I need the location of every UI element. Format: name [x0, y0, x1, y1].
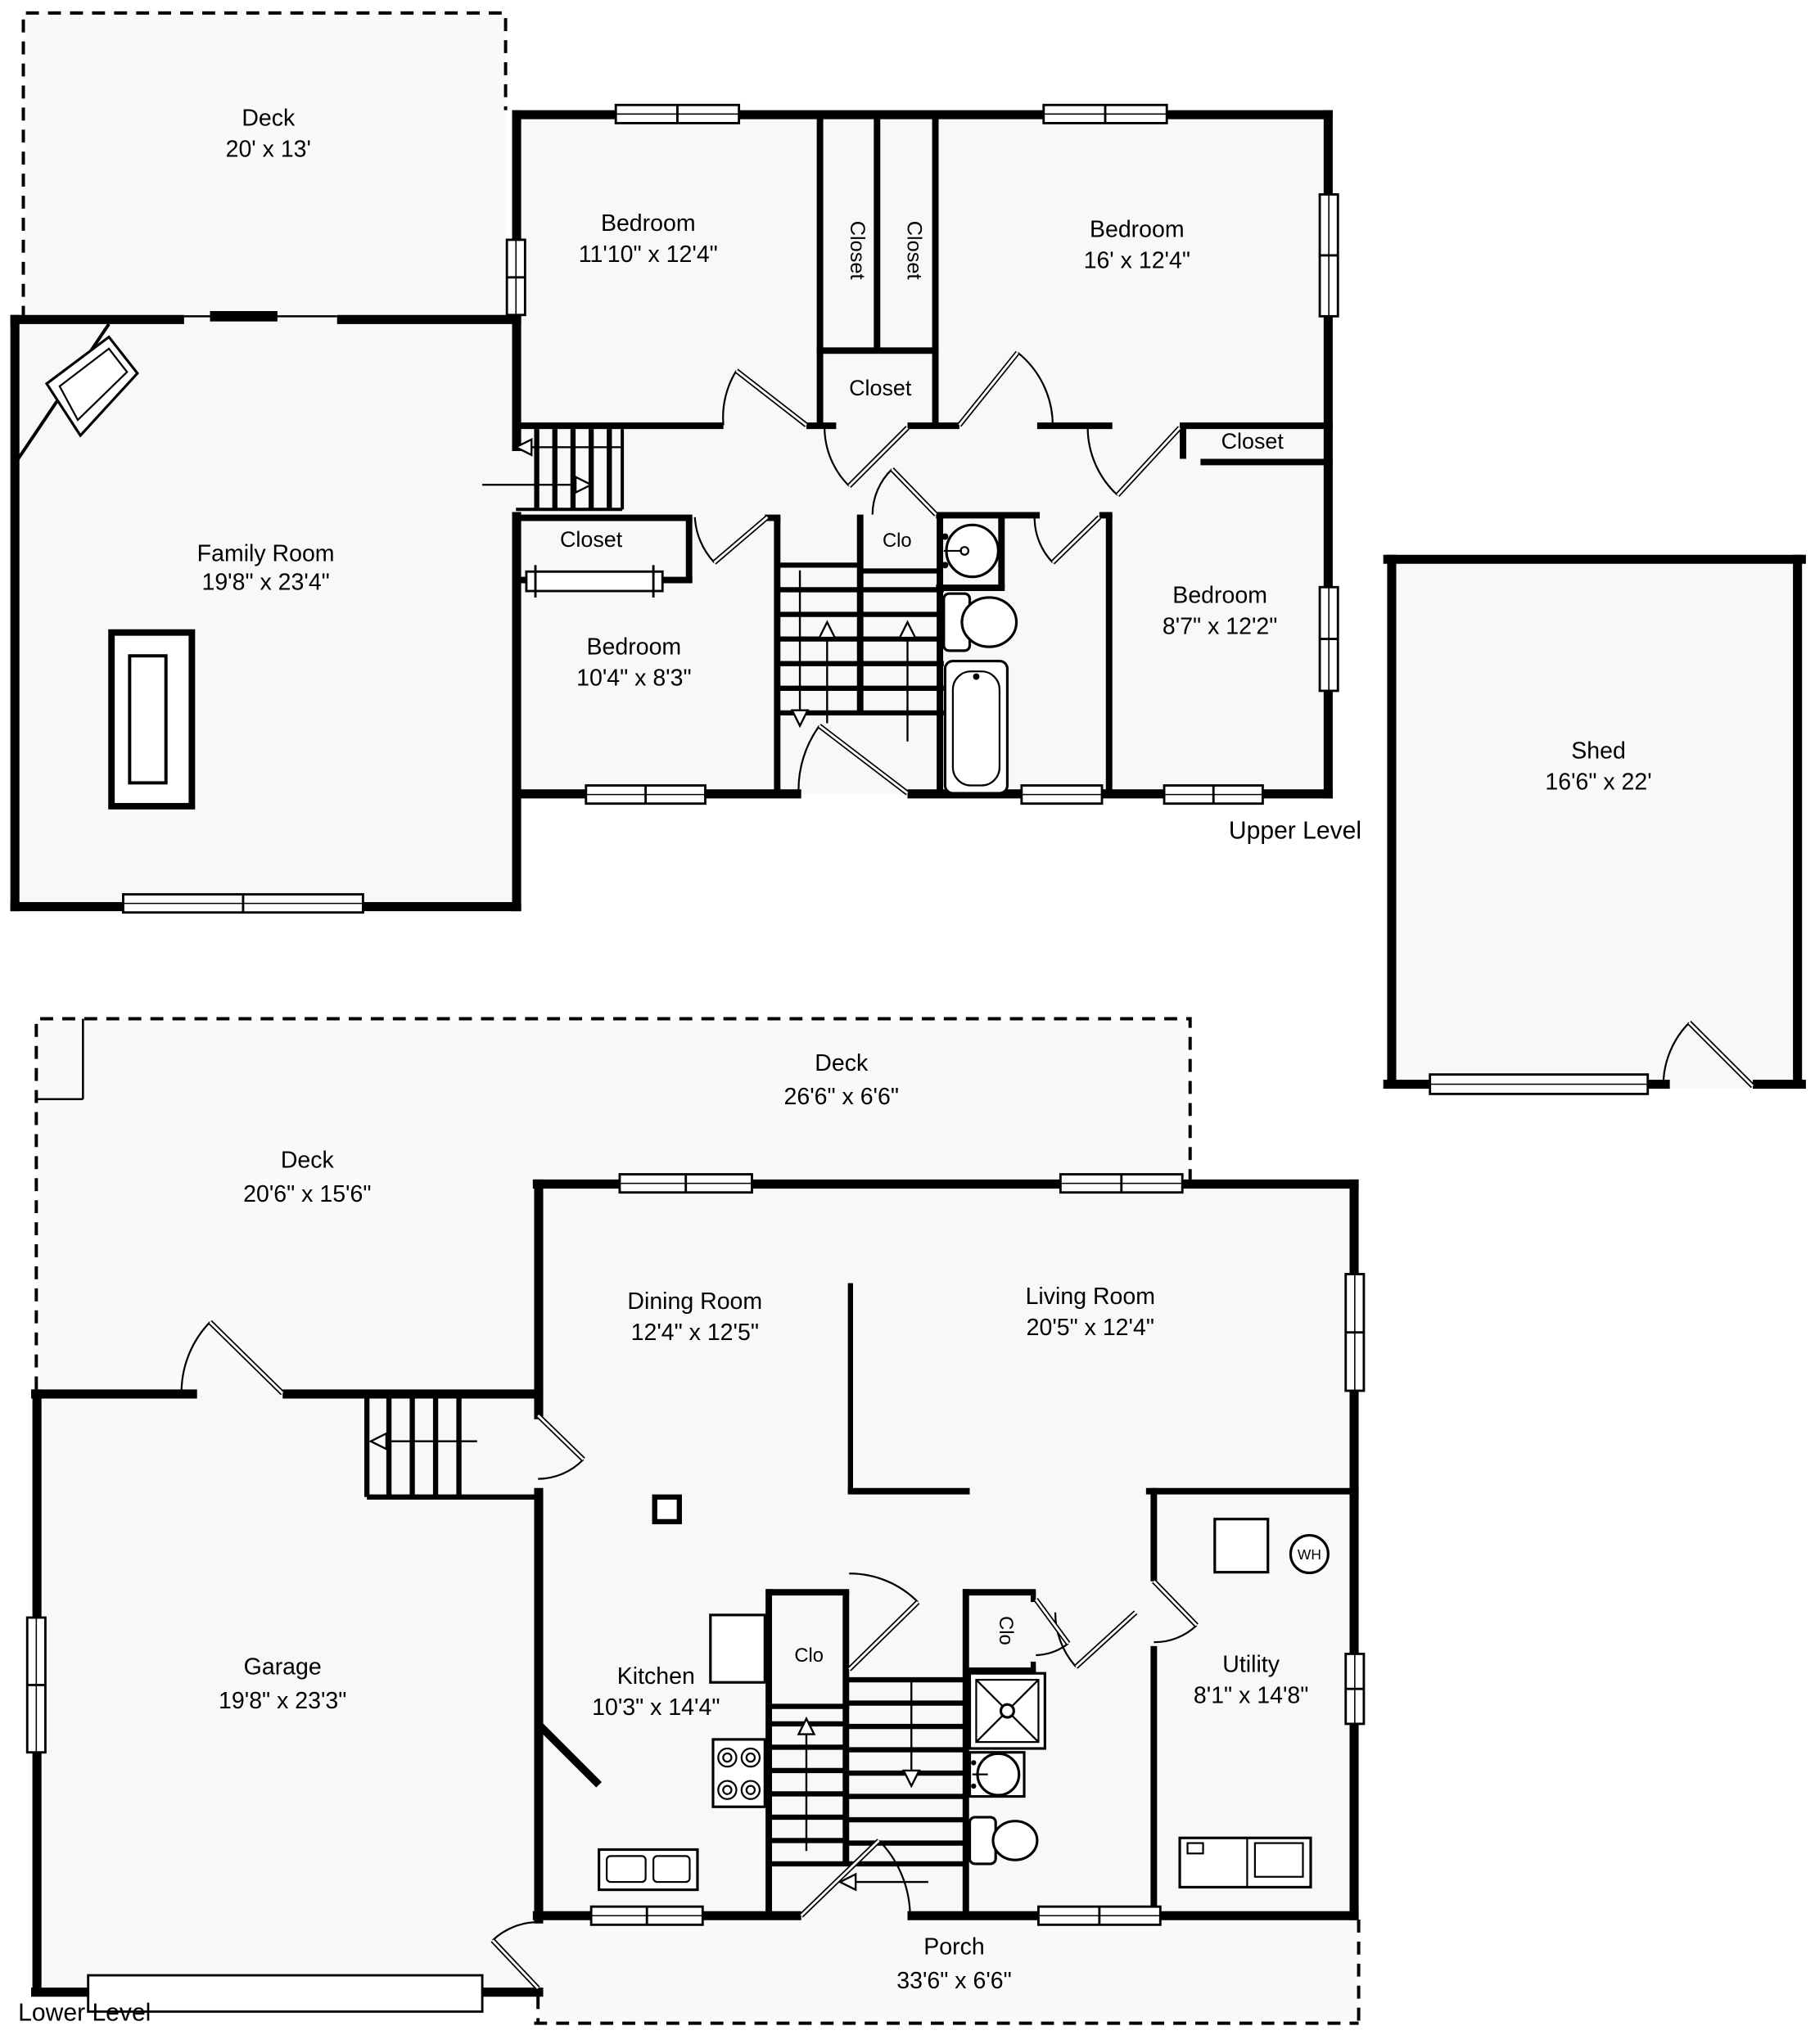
living-room-label: Living Room — [1026, 1284, 1155, 1310]
closet-center-label: Closet — [849, 376, 912, 400]
living-room-dims: 20'5" x 12'4" — [1027, 1315, 1154, 1341]
deck-rear-label: Deck — [815, 1050, 869, 1076]
window — [1320, 587, 1338, 691]
furnace — [1215, 1519, 1268, 1572]
closet-rear-label: Closet — [1221, 429, 1284, 453]
deck-upper-label: Deck — [242, 106, 296, 132]
upper-level-label: Upper Level — [1229, 817, 1361, 844]
water-heater: WH — [1290, 1536, 1328, 1573]
window — [507, 240, 525, 315]
window — [1346, 1654, 1364, 1724]
bedroom-rear-dims: 8'7" x 12'2" — [1163, 613, 1277, 639]
utility-label: Utility — [1222, 1652, 1280, 1678]
floor-plan-page: Deck 20' x 13' Bedroom 11'10" x 12'4" Cl… — [0, 0, 1815, 2044]
garage-dims: 19'8" x 23'3" — [219, 1688, 346, 1714]
window — [27, 1618, 45, 1753]
utility-dims: 8'1" x 14'8" — [1194, 1683, 1308, 1709]
bedroom-front-label: Bedroom — [601, 210, 696, 237]
window — [1060, 1175, 1182, 1193]
shed: Shed 16'6" x 22' — [1384, 555, 1806, 1094]
kitchen-label: Kitchen — [617, 1663, 695, 1690]
dining-room-label: Dining Room — [627, 1288, 762, 1315]
deck-rear-dims: 26'6" x 6'6" — [783, 1084, 898, 1110]
bedroom-small-dims: 10'4" x 8'3" — [576, 666, 691, 692]
window — [1164, 786, 1262, 804]
clo-lower-label: Clo — [794, 1645, 824, 1667]
clo-bath-label-vertical: Clo — [995, 1616, 1017, 1645]
stove — [713, 1739, 765, 1807]
window — [591, 1906, 702, 1924]
toilet-fixture — [944, 593, 1017, 651]
washer-dryer — [1180, 1838, 1311, 1887]
sink-fixture — [970, 1753, 1025, 1797]
floor-plan-svg: Deck 20' x 13' Bedroom 11'10" x 12'4" Cl… — [0, 0, 1815, 2044]
window — [586, 786, 706, 804]
window — [123, 895, 363, 913]
lower-level: WH Deck 26'6" x 6'6" Deck 20'6" x 15'6" … — [18, 1019, 1364, 2027]
lower-level-label: Lower Level — [18, 2000, 151, 2027]
closet-bedroom-label: Closet — [560, 527, 623, 552]
bedroom-front-dims: 11'10" x 12'4" — [579, 241, 718, 268]
fireplace — [111, 633, 192, 806]
toilet-fixture — [970, 1817, 1037, 1864]
shed-label: Shed — [1571, 738, 1626, 764]
dining-room-dims: 12'4" x 12'5" — [631, 1320, 759, 1346]
bedroom-rear-label: Bedroom — [1172, 582, 1267, 608]
bedroom-large-label: Bedroom — [1090, 217, 1185, 243]
window — [1038, 1906, 1160, 1924]
family-room-dims: 19'8" x 23'4" — [201, 569, 329, 595]
clo-upper-label: Clo — [883, 530, 912, 552]
shed-area — [1387, 555, 1802, 1089]
bathtub-fixture — [945, 661, 1007, 794]
window — [1022, 786, 1102, 804]
family-room-label: Family Room — [197, 541, 335, 567]
window — [1044, 105, 1167, 123]
porch-label: Porch — [923, 1934, 984, 1961]
water-heater-label: WH — [1298, 1546, 1321, 1563]
closet-label-vertical-1: Closet — [846, 221, 869, 280]
shed-dims: 16'6" x 22' — [1545, 769, 1651, 795]
window — [1430, 1075, 1648, 1094]
upper-level: Deck 20' x 13' Bedroom 11'10" x 12'4" Cl… — [11, 11, 1361, 913]
post — [655, 1497, 679, 1522]
porch-dims: 33'6" x 6'6" — [896, 1968, 1011, 1994]
garage-label: Garage — [244, 1654, 322, 1681]
window — [1346, 1274, 1364, 1391]
bedroom-small-label: Bedroom — [587, 634, 682, 661]
window — [1320, 195, 1338, 317]
deck-upper-area — [24, 11, 506, 319]
kitchen-sink — [599, 1849, 698, 1889]
shower — [970, 1673, 1045, 1748]
window — [616, 105, 738, 123]
bedroom-large-dims: 16' x 12'4" — [1084, 248, 1190, 274]
deck-side-label: Deck — [281, 1148, 335, 1174]
deck-side-dims: 20'6" x 15'6" — [243, 1181, 371, 1207]
deck-upper-dims: 20' x 13' — [226, 137, 311, 163]
closet-label-vertical-2: Closet — [902, 221, 925, 280]
window — [620, 1175, 752, 1193]
refrigerator — [711, 1615, 765, 1682]
kitchen-dims: 10'3" x 14'4" — [592, 1694, 720, 1721]
